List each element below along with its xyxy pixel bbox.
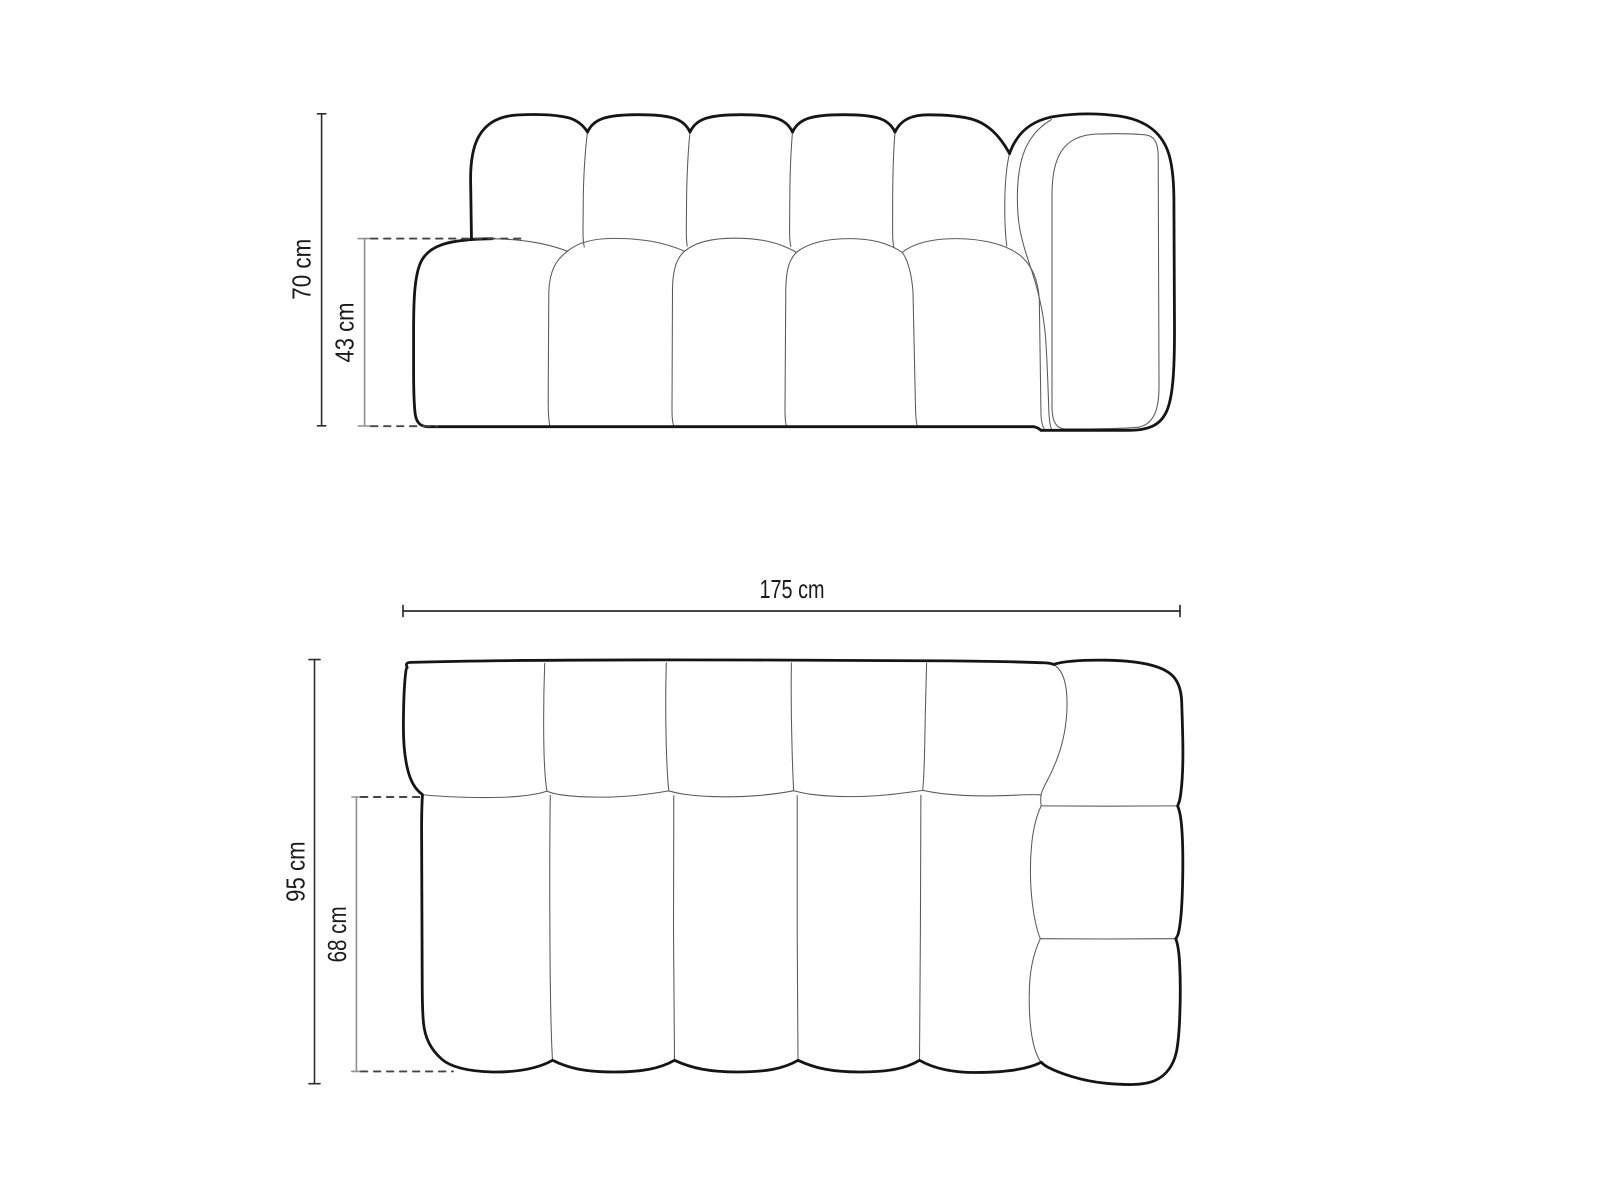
- svg-text:95 cm: 95 cm: [281, 841, 311, 902]
- svg-text:70 cm: 70 cm: [287, 239, 317, 300]
- svg-text:43 cm: 43 cm: [330, 303, 360, 363]
- svg-text:68 cm: 68 cm: [322, 906, 352, 962]
- svg-text:175 cm: 175 cm: [760, 574, 825, 604]
